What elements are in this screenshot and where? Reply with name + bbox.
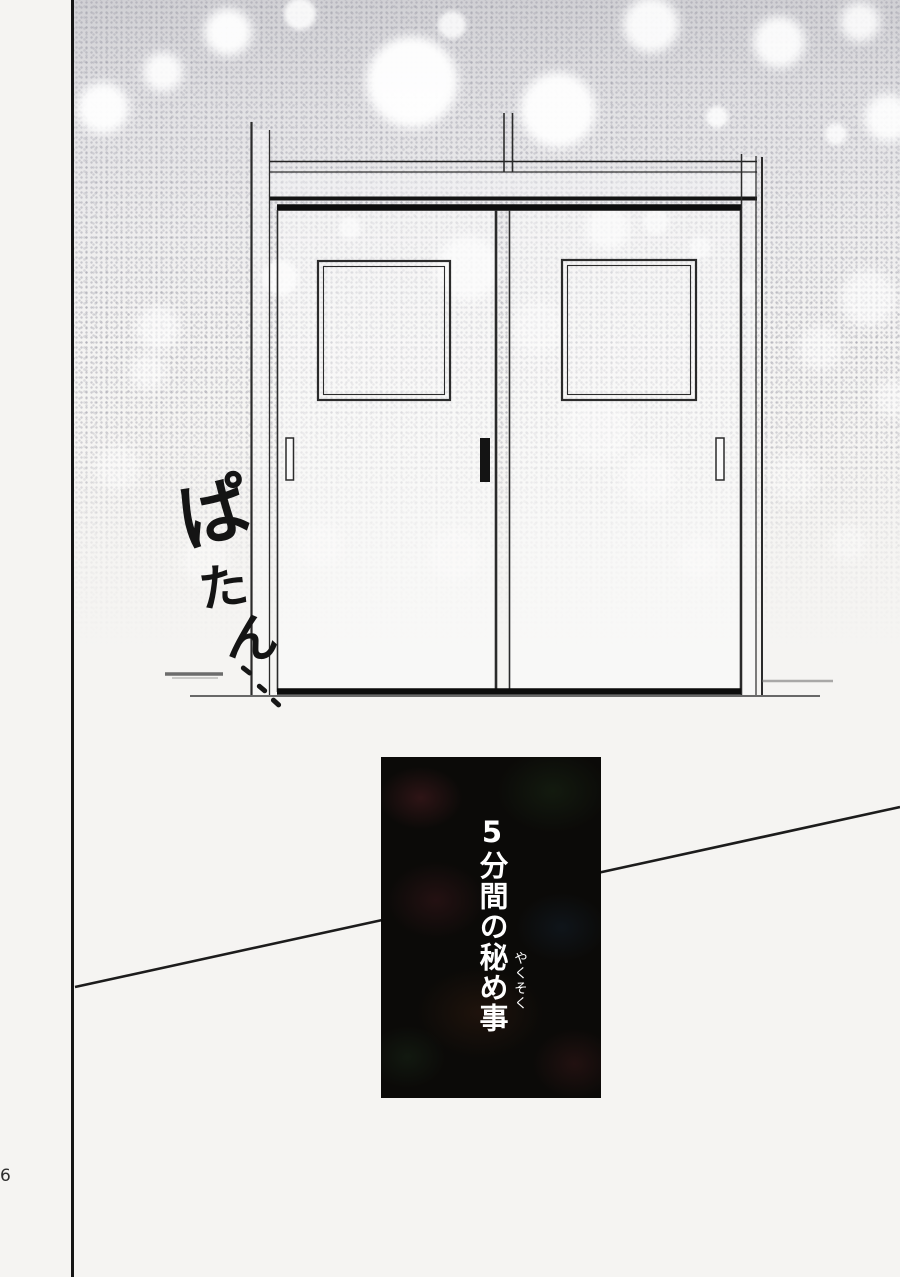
title-text: 5分間の秘め事	[475, 815, 509, 1034]
sfx-char-ta: た	[196, 560, 251, 615]
door-scene	[74, 0, 900, 712]
manga-page: ぱ た ん 5分間の秘め事 やくそく 6	[0, 0, 900, 1277]
sfx-char-n: ん	[226, 612, 280, 666]
page-border-line	[71, 0, 74, 1277]
page-number: 6	[0, 1166, 11, 1186]
texture-fade	[74, 0, 900, 712]
title-furigana: やくそく	[509, 951, 529, 1011]
title-panel: 5分間の秘め事 やくそく	[381, 757, 601, 1098]
